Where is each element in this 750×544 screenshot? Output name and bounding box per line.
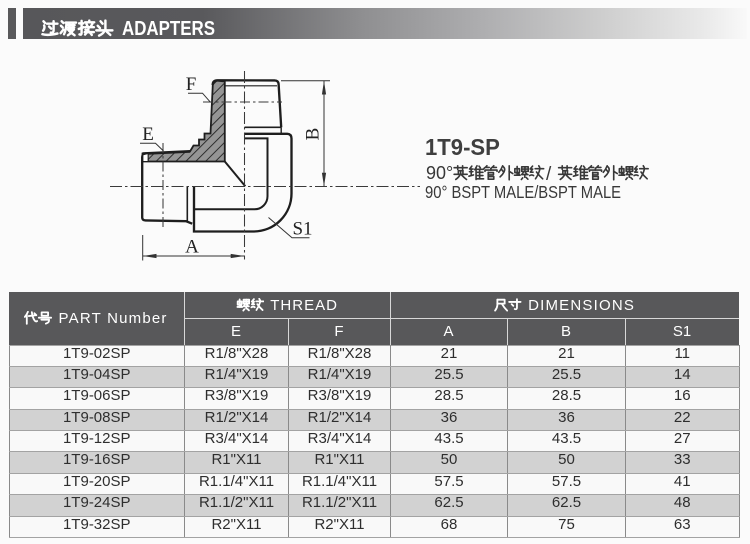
svg-text:S1: S1 bbox=[292, 219, 312, 240]
svg-text:A: A bbox=[185, 237, 199, 258]
svg-text:90°: 90° bbox=[426, 163, 453, 183]
